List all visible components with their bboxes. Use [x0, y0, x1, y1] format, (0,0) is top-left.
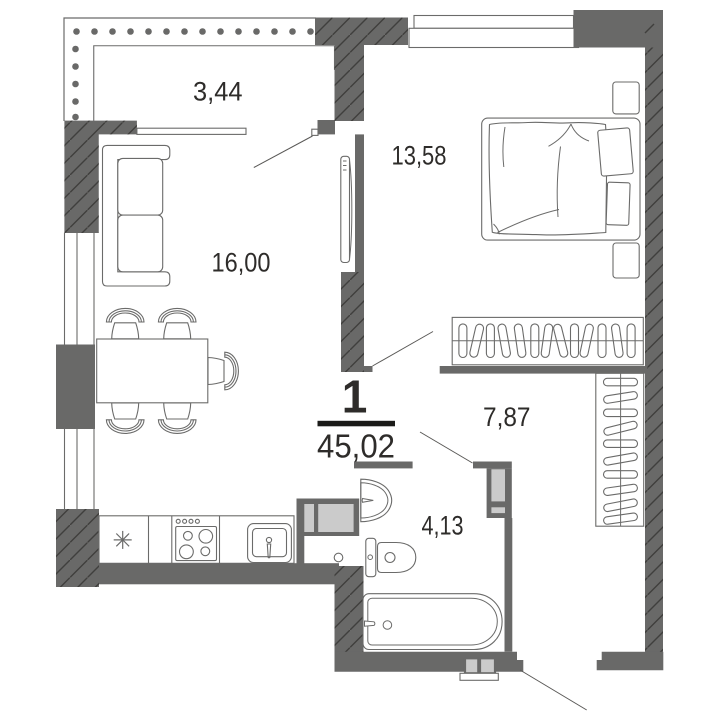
- svg-text:4,13: 4,13: [422, 511, 464, 541]
- svg-text:16,00: 16,00: [212, 248, 271, 278]
- svg-text:1: 1: [342, 371, 368, 423]
- svg-text:45,02: 45,02: [317, 428, 395, 465]
- svg-text:13,58: 13,58: [392, 141, 447, 171]
- svg-text:3,44: 3,44: [193, 77, 243, 107]
- svg-text:7,87: 7,87: [483, 402, 531, 432]
